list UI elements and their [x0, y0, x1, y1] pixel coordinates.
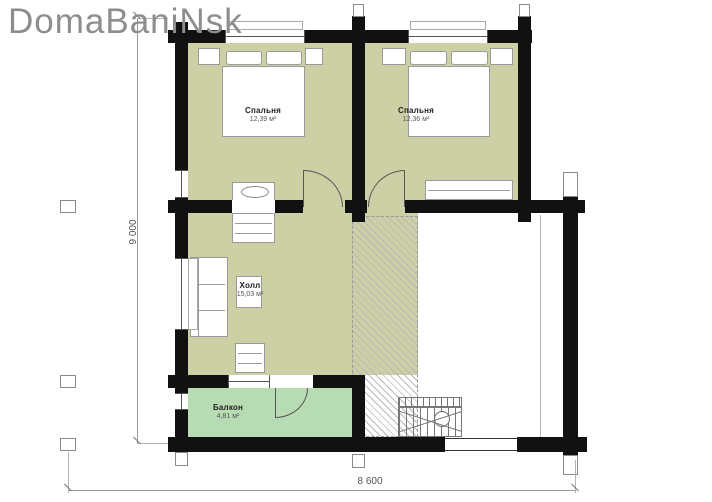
log-end-marker [352, 454, 365, 468]
window-symbol [228, 375, 270, 388]
wall-opening [232, 200, 275, 213]
room-area: 12,39 м² [213, 116, 313, 125]
wall-segment [175, 22, 188, 170]
dimension-label-horizontal: 8 600 [340, 476, 400, 488]
wall-segment [518, 16, 531, 222]
brand-logo: DomaBaniNsk [8, 0, 243, 44]
wall-segment [168, 375, 228, 388]
window-sill [188, 258, 198, 330]
nightstand-symbol [490, 48, 513, 65]
cabinet-shelf-line [238, 363, 262, 364]
room-name: Спальня [366, 106, 466, 116]
pillow-symbol [266, 51, 302, 65]
room-area: 15,03 м² [205, 291, 295, 300]
cabinet-symbol [232, 213, 275, 243]
door-leaf [404, 170, 405, 207]
terrace-railing [445, 438, 517, 451]
window-symbol [175, 393, 188, 410]
stairs-upper-treads [398, 397, 462, 407]
nightstand-symbol [305, 48, 323, 65]
stove-symbol [232, 182, 275, 201]
log-end-marker [353, 4, 364, 17]
room-label-balcony: Балкон 4,81 м² [188, 403, 268, 422]
window-sill [410, 21, 486, 30]
extension-line [137, 443, 168, 444]
window-symbol [175, 170, 188, 198]
door-leaf [275, 388, 276, 418]
nightstand-symbol [382, 48, 406, 65]
log-end-marker [60, 438, 76, 451]
log-end-marker [60, 200, 76, 213]
window-symbol [408, 30, 488, 43]
log-end-marker [519, 4, 530, 17]
log-end-marker [60, 375, 76, 388]
bed-symbol [222, 66, 305, 137]
wardrobe-symbol [425, 180, 513, 200]
floor-plan: DomaBaniNsk [0, 0, 712, 502]
wall-segment [563, 197, 578, 455]
room-label-bedroom-left: Спальня 12,39 м² [213, 106, 313, 125]
log-end-marker [175, 452, 188, 466]
cabinet-shelf-line [238, 353, 262, 354]
window-symbol [175, 258, 188, 330]
wall-segment [405, 200, 585, 213]
log-end-marker [563, 172, 578, 197]
sofa-back-line [198, 258, 199, 336]
wall-segment [352, 16, 365, 222]
bed-symbol [408, 66, 490, 137]
room-area: 12,36 м² [366, 116, 466, 125]
room-name: Холл [205, 281, 295, 291]
room-name: Балкон [188, 403, 268, 413]
stove-basin [241, 186, 269, 198]
cabinet-shelf-line [235, 223, 272, 224]
nightstand-symbol [198, 48, 220, 65]
wall-segment [168, 437, 445, 452]
room-label-hall: Холл 15,03 м² [205, 281, 295, 300]
pillow-symbol [410, 51, 447, 65]
door-leaf [303, 170, 304, 207]
room-label-bedroom-right: Спальня 12,36 м² [366, 106, 466, 125]
wardrobe-line [428, 190, 510, 191]
cabinet-shelf-line [235, 233, 272, 234]
lower-floor-edge-line [540, 215, 541, 437]
dimension-label-vertical: 9 000 [128, 202, 140, 262]
dimension-line-horizontal [68, 490, 575, 491]
stairs-symbol [398, 397, 462, 438]
pillow-symbol [226, 51, 262, 65]
room-name: Спальня [213, 106, 313, 116]
room-area: 4,81 м² [188, 413, 268, 422]
cabinet-symbol [235, 343, 265, 373]
pillow-symbol [451, 51, 488, 65]
